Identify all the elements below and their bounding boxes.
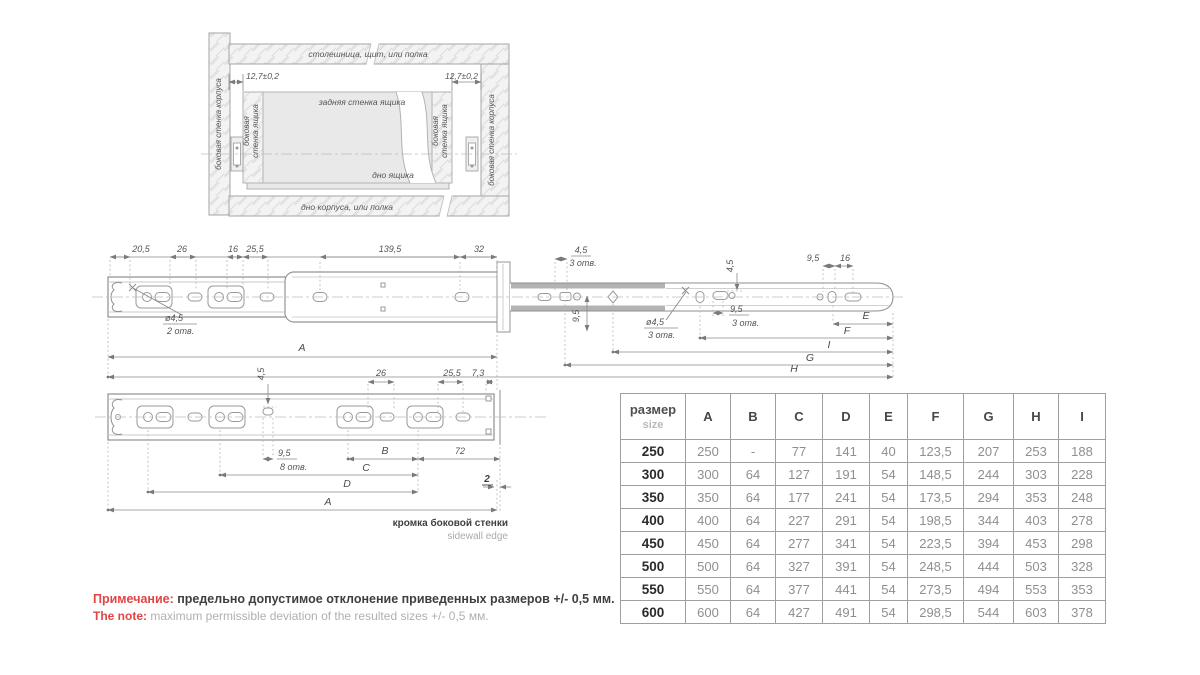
col-header-D: D — [823, 394, 870, 440]
table-row: 5005006432739154248,5444503328 — [621, 555, 1106, 578]
table-cell: 291 — [823, 509, 870, 532]
size-cell: 350 — [621, 486, 686, 509]
callout-3-holes: 3 отв. — [648, 330, 675, 340]
table-row: 3003006412719154148,5244303228 — [621, 463, 1106, 486]
dim-H: H — [790, 363, 798, 375]
table-cell: 64 — [731, 532, 776, 555]
dim-D: D — [343, 478, 351, 490]
table-cell: 64 — [731, 601, 776, 624]
label-drawer-bottom: дно ящика — [372, 170, 414, 180]
table-cell: 123,5 — [908, 440, 964, 463]
table-cell: 603 — [1014, 601, 1059, 624]
table-cell: 403 — [1014, 509, 1059, 532]
note-text-en: maximum permissible deviation of the res… — [150, 609, 488, 623]
size-cell: 500 — [621, 555, 686, 578]
dim-9-5-member: 9,5 — [278, 448, 292, 458]
table-cell: 341 — [823, 532, 870, 555]
table-cell: 378 — [1059, 601, 1106, 624]
note-text-ru: предельно допустимое отклонение приведен… — [177, 592, 614, 606]
dim-8-holes: 8 отв. — [280, 462, 307, 472]
callout-2-holes: 2 отв. — [166, 326, 194, 336]
dim-32: 32 — [474, 244, 484, 254]
note-line-ru: Примечание: предельно допустимое отклоне… — [93, 590, 633, 608]
table-cell: 188 — [1059, 440, 1106, 463]
dim-I: I — [828, 339, 831, 351]
size-cell: 300 — [621, 463, 686, 486]
sidewall-edge-label-en: sidewall edge — [447, 531, 508, 542]
label-drawer-wall-right-2: стенка ящика — [440, 104, 449, 158]
table-cell: - — [731, 440, 776, 463]
dim-E: E — [862, 310, 870, 322]
table-cell: 350 — [686, 486, 731, 509]
rail-shading-bottom — [511, 306, 665, 311]
size-label-ru: размер — [621, 402, 685, 418]
table-cell: 400 — [686, 509, 731, 532]
label-drawer-wall-right-1: боковая — [431, 115, 440, 146]
table-cell: 64 — [731, 463, 776, 486]
table-cell: 344 — [964, 509, 1014, 532]
table-cell: 177 — [776, 486, 823, 509]
size-header-cell: размер size — [621, 394, 686, 440]
slide-assembly-drawing: 20,5 26 16 25,5 139,5 32 4,5 3 отв. 9,5 … — [92, 244, 905, 392]
table-cell: 278 — [1059, 509, 1106, 532]
table-cell: 441 — [823, 578, 870, 601]
dim-A-top: A — [297, 342, 305, 354]
size-label-en: size — [621, 419, 685, 431]
col-header-C: C — [776, 394, 823, 440]
table-row: 4004006422729154198,5344403278 — [621, 509, 1106, 532]
col-header-B: B — [731, 394, 776, 440]
label-body-wall-right: боковая стенка корпуса — [487, 94, 496, 186]
table-cell: 600 — [686, 601, 731, 624]
dim-139-5: 139,5 — [379, 244, 403, 254]
table-cell: 248 — [1059, 486, 1106, 509]
table-cell: 298,5 — [908, 601, 964, 624]
dim-9-5-vertical: 9,5 — [571, 309, 581, 323]
dim-26: 26 — [176, 244, 187, 254]
size-cell: 250 — [621, 440, 686, 463]
label-body-wall-left: боковая стенка корпуса — [214, 78, 223, 170]
table-cell: 453 — [1014, 532, 1059, 555]
table-cell: 391 — [823, 555, 870, 578]
note-label-en: The note: — [93, 609, 147, 623]
slide-member-drawing: 26 25,5 7,3 4,5 9,5 8 отв. B 72 — [95, 367, 548, 542]
table-cell: 141 — [823, 440, 870, 463]
table-cell: 253 — [1014, 440, 1059, 463]
dim-16-right: 16 — [840, 253, 850, 263]
dim-25-5: 25,5 — [245, 244, 265, 254]
table-cell: 544 — [964, 601, 1014, 624]
dim-offset-left: 12,7±0,2 — [246, 71, 279, 81]
dim-7-3: 7,3 — [472, 368, 485, 378]
table-cell: 198,5 — [908, 509, 964, 532]
size-cell: 400 — [621, 509, 686, 532]
table-cell: 248,5 — [908, 555, 964, 578]
table-cell: 300 — [686, 463, 731, 486]
table-row: 6006006442749154298,5544603378 — [621, 601, 1106, 624]
table-cell: 64 — [731, 509, 776, 532]
table-cell: 491 — [823, 601, 870, 624]
note-line-en: The note: maximum permissible deviation … — [93, 608, 633, 625]
table-row: 3503506417724154173,5294353248 — [621, 486, 1106, 509]
table-cell: 223,5 — [908, 532, 964, 555]
table-cell: 227 — [776, 509, 823, 532]
table-cell: 207 — [964, 440, 1014, 463]
table-row: 250250-7714140123,5207253188 — [621, 440, 1106, 463]
table-cell: 228 — [1059, 463, 1106, 486]
table-cell: 553 — [1014, 578, 1059, 601]
drawer-bottom-panel — [247, 183, 449, 189]
dim-F: F — [844, 325, 851, 337]
table-cell: 444 — [964, 555, 1014, 578]
dim-3-holes: 3 отв. — [569, 258, 596, 268]
drawer-slide-spec-sheet: 12,7±0,2 12,7±0,2 столешница, щит, или п… — [0, 0, 1200, 675]
col-header-G: G — [964, 394, 1014, 440]
table-row: 4504506427734154223,5394453298 — [621, 532, 1106, 555]
table-cell: 550 — [686, 578, 731, 601]
table-cell: 40 — [870, 440, 908, 463]
label-drawer-wall-left-2: стенка ящика — [251, 104, 260, 158]
note-label-ru: Примечание: — [93, 592, 174, 606]
dim-72: 72 — [455, 446, 465, 456]
table-row: 5505506437744154273,5494553353 — [621, 578, 1106, 601]
dim-4-5-member: 4,5 — [256, 367, 266, 381]
col-header-I: I — [1059, 394, 1106, 440]
table-cell: 54 — [870, 463, 908, 486]
table-cell: 173,5 — [908, 486, 964, 509]
dim-4-5-vertical: 4,5 — [725, 259, 735, 273]
note-block: Примечание: предельно допустимое отклоне… — [93, 590, 633, 626]
label-bottom-panel: дно корпуса, или полка — [301, 202, 393, 212]
table-cell: 394 — [964, 532, 1014, 555]
rail-shading-top — [511, 284, 665, 289]
dim-G: G — [806, 352, 814, 364]
table-cell: 64 — [731, 578, 776, 601]
table-cell: 191 — [823, 463, 870, 486]
col-header-F: F — [908, 394, 964, 440]
table-cell: 64 — [731, 486, 776, 509]
table-cell: 450 — [686, 532, 731, 555]
table-cell: 277 — [776, 532, 823, 555]
table-cell: 273,5 — [908, 578, 964, 601]
dim-26-member: 26 — [375, 368, 386, 378]
table-cell: 328 — [1059, 555, 1106, 578]
size-table: размер size ABCDEFGHI 250250-7714140123,… — [620, 393, 1106, 624]
table-cell: 127 — [776, 463, 823, 486]
table-cell: 64 — [731, 555, 776, 578]
table-cell: 494 — [964, 578, 1014, 601]
callout-dia-4-5-b: ø4,5 — [646, 317, 665, 327]
table-cell: 427 — [776, 601, 823, 624]
label-top-panel: столешница, щит, или полка — [308, 49, 427, 59]
table-cell: 377 — [776, 578, 823, 601]
table-cell: 54 — [870, 509, 908, 532]
dim-9-5-slot-holes: 3 отв. — [732, 318, 759, 328]
size-cell: 450 — [621, 532, 686, 555]
table-cell: 54 — [870, 532, 908, 555]
table-cell: 148,5 — [908, 463, 964, 486]
table-cell: 353 — [1059, 578, 1106, 601]
size-table-body: 250250-7714140123,5207253188300300641271… — [621, 440, 1106, 624]
table-cell: 500 — [686, 555, 731, 578]
table-cell: 294 — [964, 486, 1014, 509]
table-cell: 54 — [870, 555, 908, 578]
callout-dia-4-5-a: ø4,5 — [165, 313, 184, 323]
col-header-A: A — [686, 394, 731, 440]
table-cell: 327 — [776, 555, 823, 578]
table-cell: 353 — [1014, 486, 1059, 509]
table-cell: 244 — [964, 463, 1014, 486]
cabinet-section-diagram: 12,7±0,2 12,7±0,2 столешница, щит, или п… — [201, 33, 517, 217]
dim-9-5-right: 9,5 — [807, 253, 821, 263]
dim-C: C — [362, 462, 370, 474]
table-cell: 298 — [1059, 532, 1106, 555]
dim-25-5-member: 25,5 — [442, 368, 462, 378]
table-cell: 54 — [870, 578, 908, 601]
table-cell: 303 — [1014, 463, 1059, 486]
col-header-H: H — [1014, 394, 1059, 440]
table-cell: 77 — [776, 440, 823, 463]
dim-20-5: 20,5 — [131, 244, 151, 254]
dim-B: B — [381, 445, 388, 457]
dim-4-5-slot: 4,5 — [575, 245, 589, 255]
dim-2: 2 — [483, 474, 490, 485]
table-cell: 241 — [823, 486, 870, 509]
dim-16: 16 — [228, 244, 238, 254]
table-cell: 503 — [1014, 555, 1059, 578]
table-cell: 54 — [870, 601, 908, 624]
col-header-E: E — [870, 394, 908, 440]
dim-A-member: A — [323, 496, 331, 508]
table-cell: 250 — [686, 440, 731, 463]
table-cell: 54 — [870, 486, 908, 509]
sidewall-edge-label-ru: кромка боковой стенки — [393, 517, 508, 529]
label-drawer-back: задняя стенка ящика — [318, 97, 406, 107]
label-drawer-wall-left-1: боковая — [242, 115, 251, 146]
dim-offset-right: 12,7±0,2 — [445, 71, 478, 81]
dim-9-5-slot: 9,5 — [730, 304, 744, 314]
size-table-header-row: размер size ABCDEFGHI — [621, 394, 1106, 440]
